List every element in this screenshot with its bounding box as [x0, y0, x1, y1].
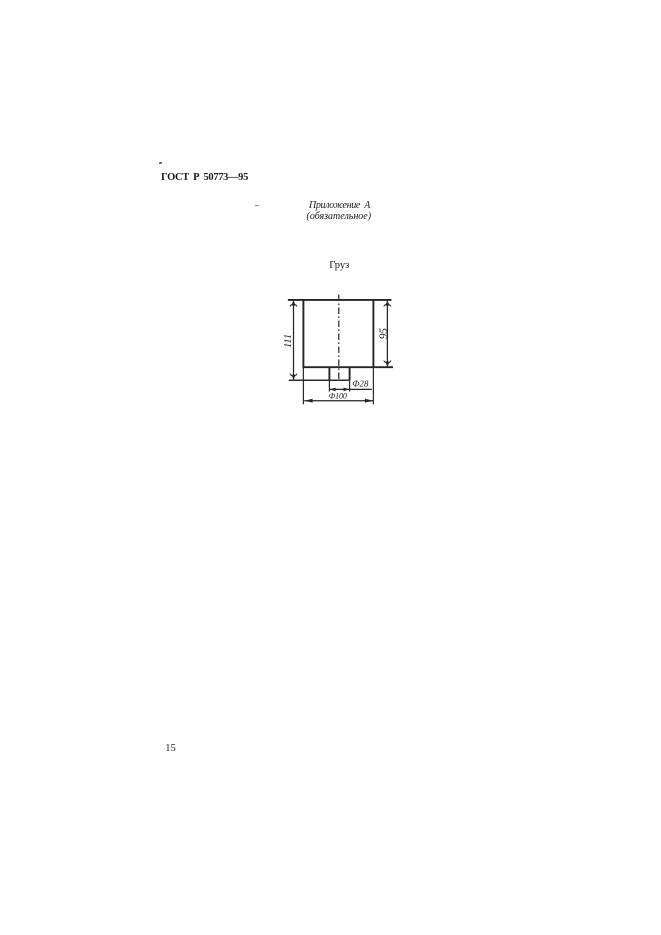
svg-text:95: 95 [378, 328, 390, 340]
svg-text:Ф28: Ф28 [352, 379, 369, 389]
svg-text:111: 111 [283, 334, 294, 348]
svg-text:Ф100: Ф100 [329, 392, 347, 401]
